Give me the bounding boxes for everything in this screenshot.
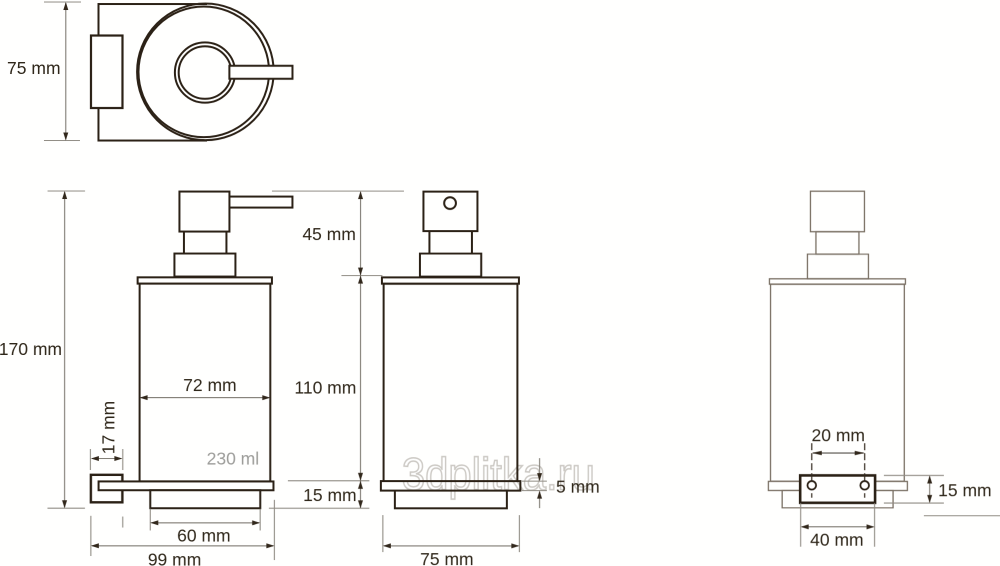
svg-text:75 mm: 75 mm <box>7 58 60 78</box>
svg-text:75 mm: 75 mm <box>420 549 473 566</box>
svg-text:99 mm: 99 mm <box>148 550 201 566</box>
svg-text:40 mm: 40 mm <box>810 530 863 550</box>
svg-text:45 mm: 45 mm <box>302 224 355 244</box>
svg-text:110 mm: 110 mm <box>294 377 356 397</box>
svg-text:170 mm: 170 mm <box>0 339 62 359</box>
svg-text:5 mm: 5 mm <box>556 477 600 497</box>
svg-text:72 mm: 72 mm <box>183 375 236 395</box>
svg-text:60 mm: 60 mm <box>177 526 230 546</box>
svg-text:17 mm: 17 mm <box>98 401 118 454</box>
svg-text:20 mm: 20 mm <box>812 425 865 445</box>
svg-text:15 mm: 15 mm <box>938 480 991 500</box>
svg-text:15 mm: 15 mm <box>303 485 356 505</box>
svg-text:230 ml: 230 ml <box>207 448 260 468</box>
